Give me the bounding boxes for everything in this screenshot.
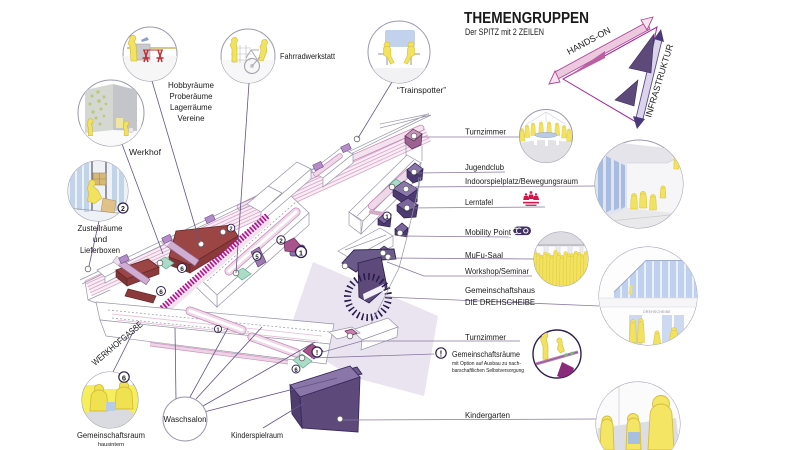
svg-text:Proberäume: Proberäume [170, 91, 213, 101]
svg-text:6: 6 [180, 266, 184, 273]
svg-text:1: 1 [216, 328, 219, 334]
svg-text:Fahrradwerkstatt: Fahrradwerkstatt [280, 51, 336, 61]
svg-text:2: 2 [229, 227, 232, 233]
svg-text:!: ! [440, 349, 443, 358]
svg-text:mit Option auf Ausbau zu nach-: mit Option auf Ausbau zu nach- [452, 361, 521, 367]
svg-text:Gemeinschaftsräume: Gemeinschaftsräume [452, 349, 520, 359]
svg-text:Gemeinschaftshaus: Gemeinschaftshaus [465, 285, 535, 295]
svg-text:Der SPITZ mit 2 ZEILEN: Der SPITZ mit 2 ZEILEN [465, 27, 544, 37]
svg-text:Indoorspielplatz/Bewegungsraum: Indoorspielplatz/Bewegungsraum [465, 176, 578, 186]
svg-text:THEMENGRUPPEN: THEMENGRUPPEN [464, 10, 589, 27]
svg-text:Waschsalon: Waschsalon [164, 414, 207, 424]
svg-text:Lerntafel: Lerntafel [465, 197, 493, 207]
svg-text:Workshop/Seminar: Workshop/Seminar [465, 266, 529, 276]
svg-text:“Trainspotter”: “Trainspotter” [397, 85, 446, 95]
svg-text:Mobility Point: Mobility Point [465, 227, 512, 237]
svg-text:Gemeinschaftsraum: Gemeinschaftsraum [77, 430, 145, 440]
svg-text:6: 6 [159, 289, 163, 296]
svg-text:6: 6 [122, 373, 126, 382]
svg-text:Lagerräume: Lagerräume [170, 102, 212, 112]
svg-text:DIE DREHSCHEIBE: DIE DREHSCHEIBE [465, 297, 535, 307]
svg-text:Werkhof: Werkhof [129, 147, 162, 157]
svg-text:MuFu-Saal: MuFu-Saal [465, 250, 503, 260]
svg-text:1: 1 [299, 248, 303, 257]
svg-text:Turnzimmer: Turnzimmer [465, 127, 506, 137]
svg-text:Hobbyräume: Hobbyräume [168, 80, 214, 90]
svg-text:barschaftlichen Selbstversorgu: barschaftlichen Selbstversorgung [452, 368, 524, 374]
svg-text:Turnzimmer: Turnzimmer [465, 332, 506, 342]
svg-text:und: und [93, 234, 108, 244]
svg-text:!: ! [316, 350, 318, 357]
svg-text:Jugendclub: Jugendclub [465, 162, 504, 172]
svg-text:Zustellräume: Zustellräume [78, 223, 123, 233]
svg-text:Kindergarten: Kindergarten [465, 410, 510, 420]
svg-text:DREHSCHEIBE: DREHSCHEIBE [643, 310, 671, 314]
svg-text:Vereine: Vereine [178, 113, 205, 123]
svg-text:2: 2 [121, 206, 125, 213]
svg-text:Lieferboxen: Lieferboxen [80, 245, 120, 255]
svg-text:Kinderspielraum: Kinderspielraum [231, 430, 283, 440]
svg-text:hausintern: hausintern [98, 442, 124, 448]
